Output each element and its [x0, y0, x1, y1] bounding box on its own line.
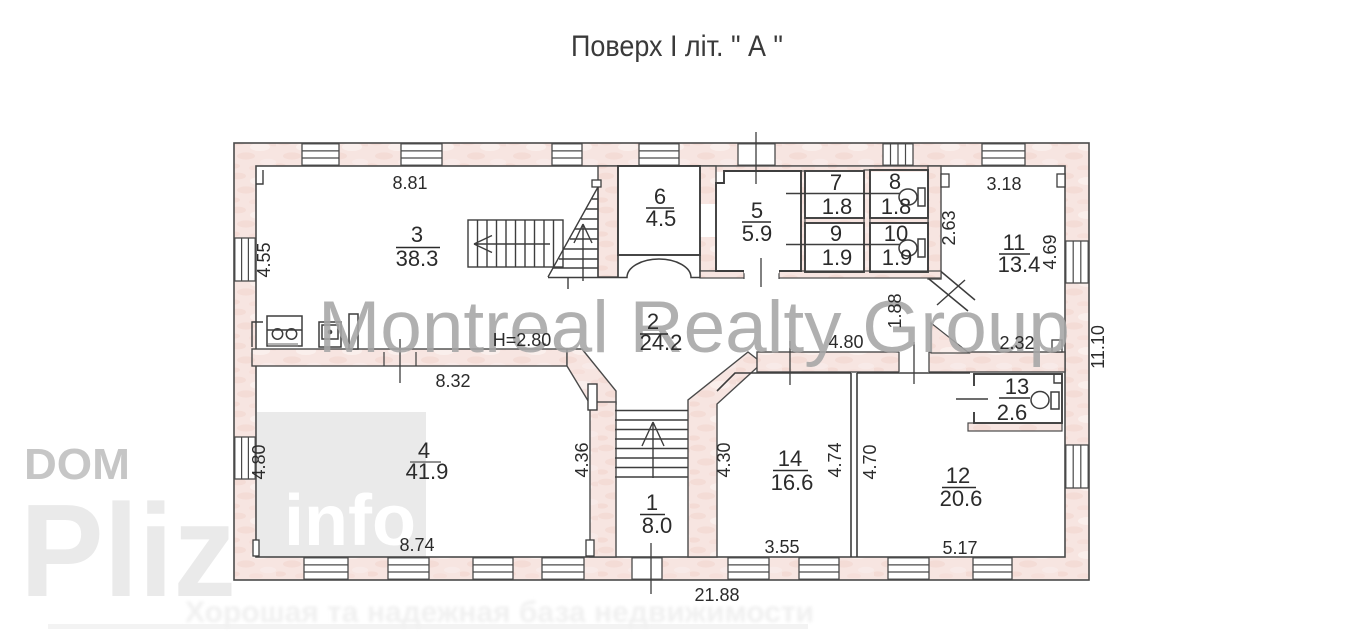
- svg-text:4.80: 4.80: [249, 444, 269, 479]
- svg-text:8: 8: [889, 169, 901, 194]
- svg-text:Montreal Realty Group: Montreal Realty Group: [318, 287, 1070, 368]
- svg-text:4.5: 4.5: [646, 206, 677, 231]
- svg-text:4.80: 4.80: [828, 332, 863, 352]
- svg-text:1.9: 1.9: [882, 245, 913, 270]
- svg-text:H=2.80: H=2.80: [493, 330, 552, 350]
- svg-text:4.74: 4.74: [825, 442, 845, 477]
- svg-text:7: 7: [830, 170, 842, 195]
- svg-text:2.6: 2.6: [997, 400, 1028, 425]
- svg-text:8.0: 8.0: [642, 513, 673, 538]
- svg-text:5.17: 5.17: [942, 538, 977, 558]
- svg-text:8.74: 8.74: [399, 535, 434, 555]
- svg-text:41.9: 41.9: [406, 459, 449, 484]
- svg-text:10: 10: [884, 221, 908, 246]
- svg-text:12: 12: [946, 463, 970, 488]
- svg-text:14: 14: [778, 446, 802, 471]
- svg-text:5.9: 5.9: [742, 221, 773, 246]
- svg-text:4.70: 4.70: [860, 444, 880, 479]
- svg-text:1.88: 1.88: [885, 293, 905, 328]
- svg-text:2.32: 2.32: [999, 333, 1034, 353]
- svg-text:Поверх І літ. " А ": Поверх І літ. " А ": [571, 30, 783, 63]
- svg-text:11.10: 11.10: [1088, 325, 1108, 369]
- svg-text:13: 13: [1005, 374, 1029, 399]
- svg-text:3.55: 3.55: [764, 537, 799, 557]
- svg-text:8.32: 8.32: [435, 371, 470, 391]
- svg-text:16.6: 16.6: [771, 470, 814, 495]
- svg-text:4.30: 4.30: [714, 442, 734, 477]
- svg-text:5: 5: [751, 198, 763, 223]
- svg-text:1.8: 1.8: [881, 194, 912, 219]
- svg-text:1: 1: [646, 490, 658, 515]
- svg-text:8.81: 8.81: [392, 173, 427, 193]
- svg-text:38.3: 38.3: [396, 246, 439, 271]
- svg-text:4.36: 4.36: [572, 442, 592, 477]
- svg-text:2.63: 2.63: [939, 210, 959, 245]
- svg-text:1.8: 1.8: [822, 194, 853, 219]
- svg-text:13.4: 13.4: [998, 252, 1041, 277]
- svg-text:1.9: 1.9: [822, 245, 853, 270]
- svg-text:20.6: 20.6: [940, 486, 983, 511]
- svg-text:24.2: 24.2: [640, 330, 683, 355]
- svg-text:4.69: 4.69: [1040, 234, 1060, 269]
- svg-text:3.18: 3.18: [986, 174, 1021, 194]
- svg-text:9: 9: [830, 221, 842, 246]
- svg-text:info: info: [284, 481, 416, 561]
- svg-text:4.55: 4.55: [254, 242, 274, 277]
- svg-text:3: 3: [411, 222, 423, 247]
- svg-text:21.88: 21.88: [694, 585, 739, 605]
